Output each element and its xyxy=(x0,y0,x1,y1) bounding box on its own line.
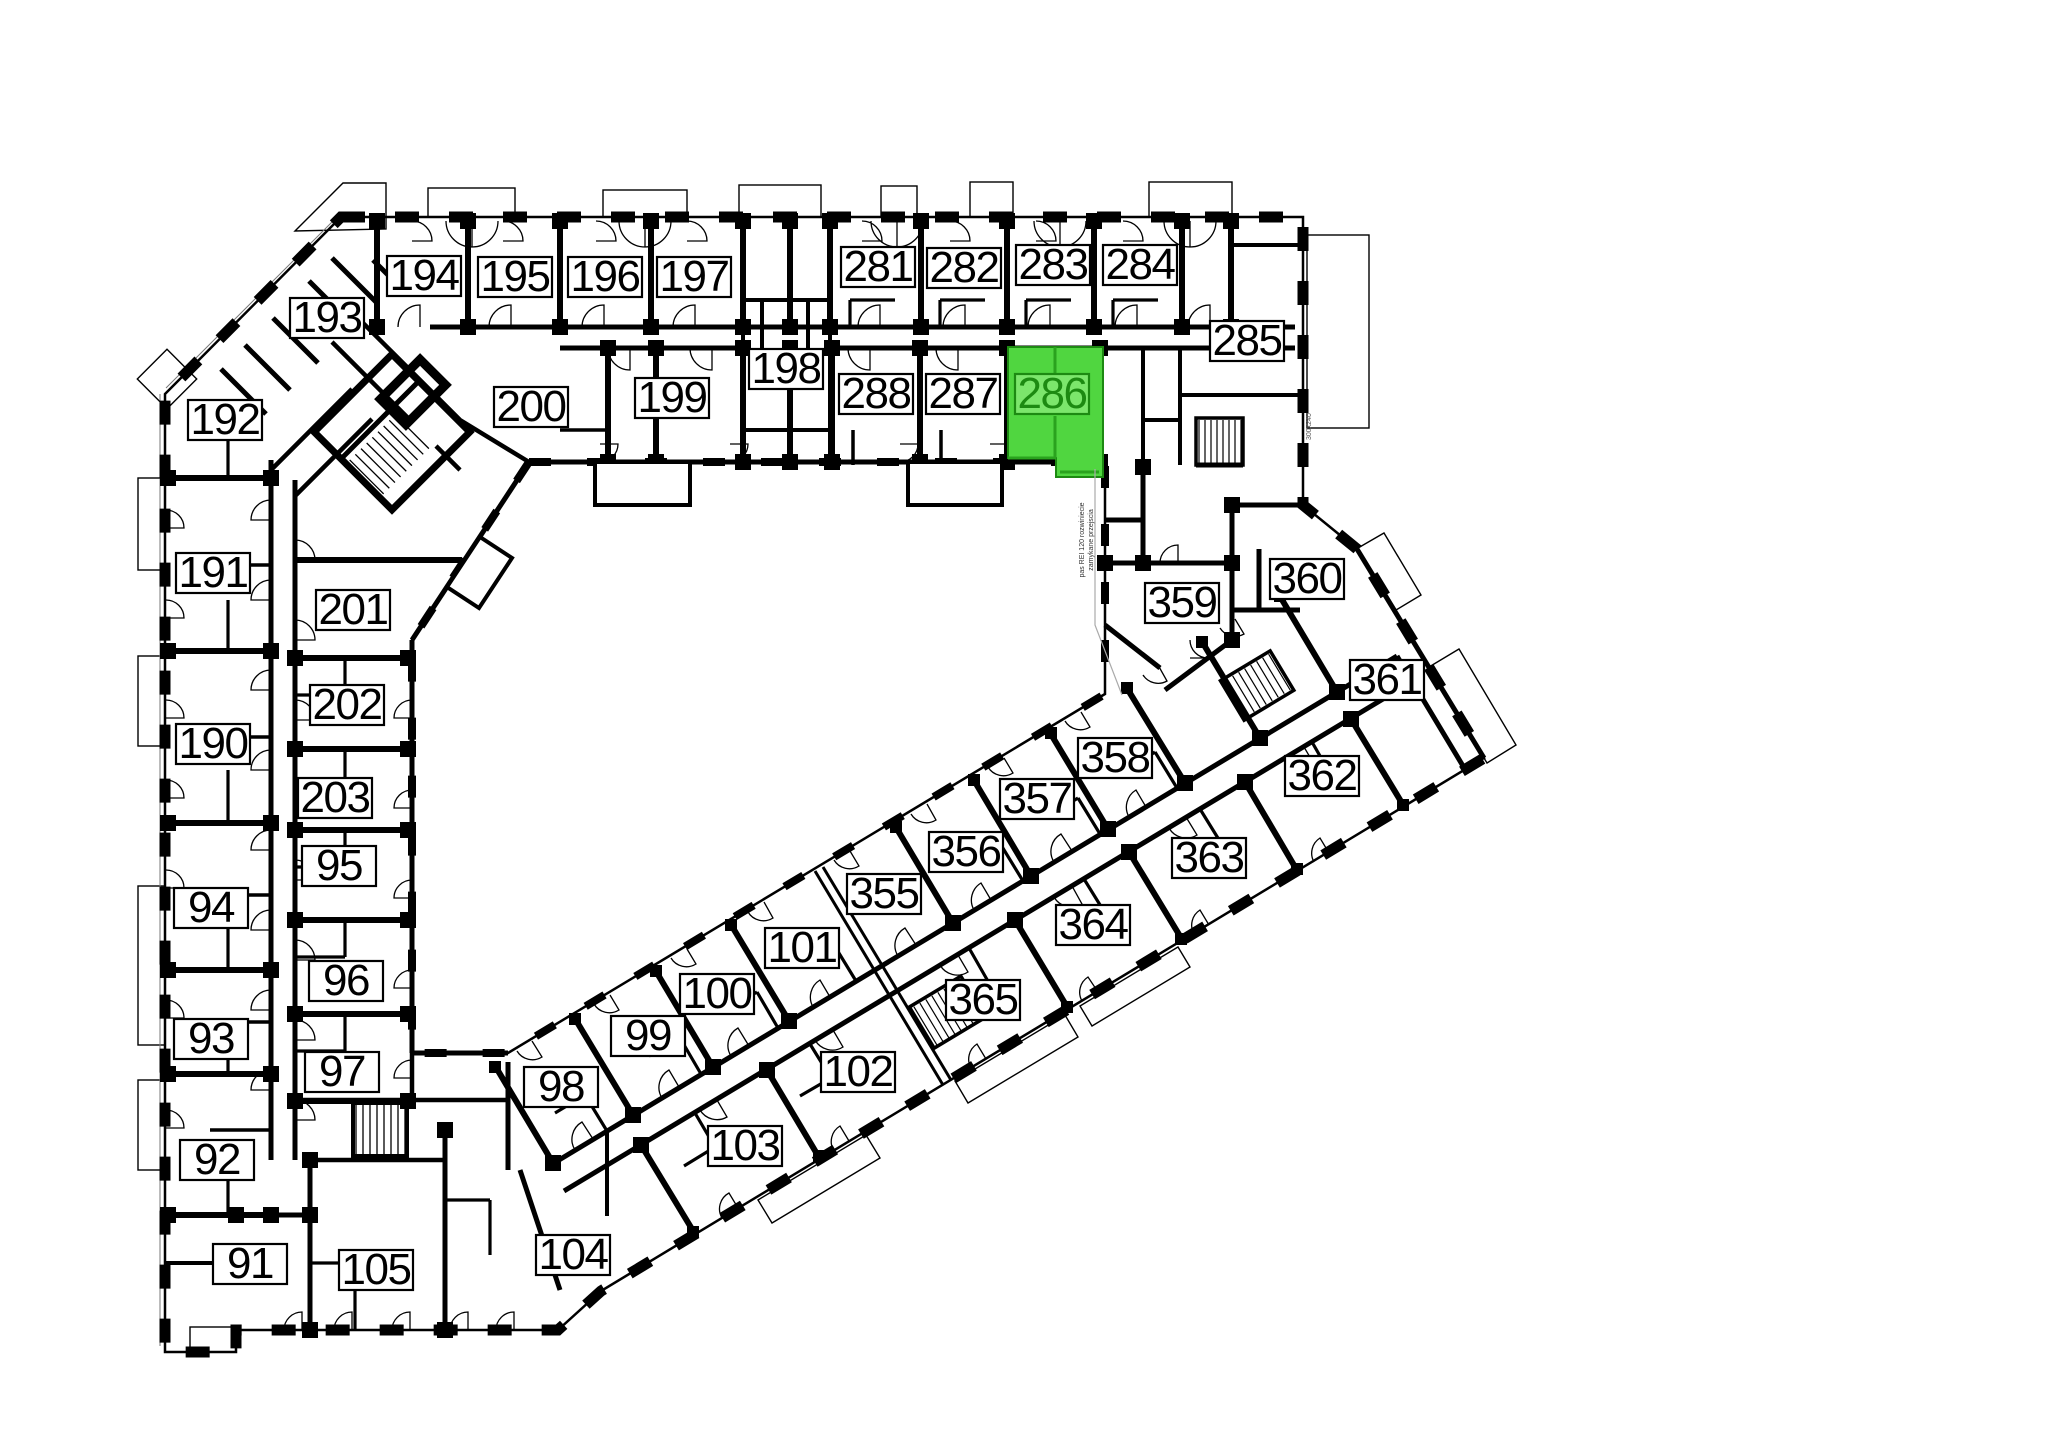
svg-text:361: 361 xyxy=(1353,655,1422,704)
svg-text:282: 282 xyxy=(930,243,999,292)
svg-text:103: 103 xyxy=(711,1121,780,1170)
svg-text:192: 192 xyxy=(191,395,260,444)
svg-text:101: 101 xyxy=(768,923,837,972)
svg-text:194: 194 xyxy=(390,251,460,300)
svg-text:281: 281 xyxy=(844,242,913,291)
svg-text:360: 360 xyxy=(1273,554,1342,603)
svg-text:104: 104 xyxy=(539,1230,609,1279)
svg-text:356: 356 xyxy=(932,827,1001,876)
svg-text:91: 91 xyxy=(227,1239,273,1288)
svg-text:362: 362 xyxy=(1288,751,1357,800)
svg-text:102: 102 xyxy=(824,1047,893,1096)
svg-text:93: 93 xyxy=(188,1014,234,1063)
svg-text:200: 200 xyxy=(497,382,566,431)
svg-text:287: 287 xyxy=(929,369,998,418)
svg-text:300x240: 300x240 xyxy=(1306,413,1313,440)
svg-text:96: 96 xyxy=(323,956,369,1005)
svg-text:357: 357 xyxy=(1003,774,1072,823)
svg-text:197: 197 xyxy=(660,252,729,301)
svg-text:288: 288 xyxy=(842,369,911,418)
svg-text:99: 99 xyxy=(625,1011,671,1060)
svg-text:190: 190 xyxy=(179,719,248,768)
svg-text:92: 92 xyxy=(194,1135,240,1184)
svg-text:199: 199 xyxy=(638,373,707,422)
svg-text:203: 203 xyxy=(301,773,370,822)
svg-text:283: 283 xyxy=(1019,240,1088,289)
svg-text:355: 355 xyxy=(850,869,919,918)
svg-text:202: 202 xyxy=(313,680,382,729)
svg-text:100: 100 xyxy=(683,969,752,1018)
svg-text:pas REI 120 rozwiniecie: pas REI 120 rozwiniecie xyxy=(1079,502,1086,577)
svg-text:105: 105 xyxy=(342,1245,411,1294)
svg-text:201: 201 xyxy=(319,585,388,634)
svg-text:359: 359 xyxy=(1148,578,1217,627)
svg-text:286: 286 xyxy=(1018,369,1087,418)
svg-text:zamykane przejscia: zamykane przejscia xyxy=(1088,509,1095,571)
svg-text:195: 195 xyxy=(481,252,550,301)
svg-text:191: 191 xyxy=(179,548,248,597)
svg-text:363: 363 xyxy=(1175,833,1244,882)
svg-text:94: 94 xyxy=(188,883,235,932)
svg-text:284: 284 xyxy=(1106,240,1176,289)
svg-text:95: 95 xyxy=(316,841,362,890)
svg-text:365: 365 xyxy=(949,975,1018,1024)
svg-text:364: 364 xyxy=(1059,900,1129,949)
svg-text:198: 198 xyxy=(752,344,821,393)
svg-text:358: 358 xyxy=(1081,733,1150,782)
svg-text:196: 196 xyxy=(571,252,640,301)
svg-text:98: 98 xyxy=(538,1062,584,1111)
svg-text:97: 97 xyxy=(319,1047,365,1096)
svg-text:285: 285 xyxy=(1213,316,1282,365)
svg-text:193: 193 xyxy=(293,293,362,342)
